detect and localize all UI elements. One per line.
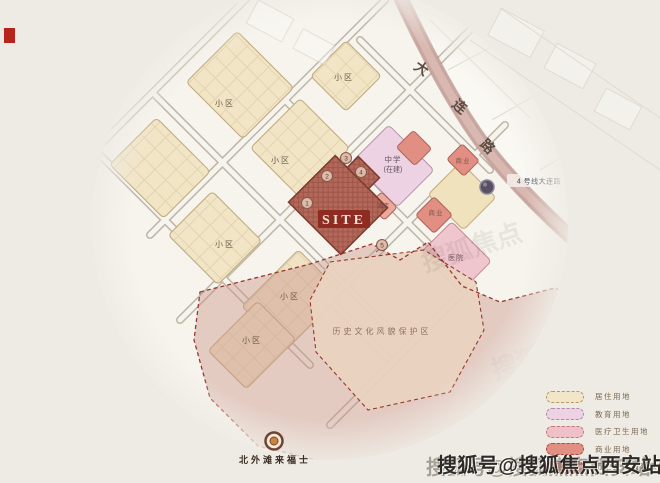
legend-swatch-residential: [546, 391, 584, 403]
landmark-label: 北外滩来福士: [239, 454, 311, 465]
site-plan-page: SITE 1 2 3 4 5 搜狐焦点 搜狐焦点 小区 小区 小区 小区 小区 …: [0, 0, 660, 483]
legend-item-residential: 居住用地: [546, 390, 660, 403]
corner-red-mark: [4, 28, 15, 43]
watermark: 搜狐号@搜狐焦点西安站 搜狐号@搜狐焦点西安站: [437, 449, 660, 478]
legend-swatch-education: [546, 408, 584, 420]
legend-label: 居住用地: [595, 391, 631, 402]
watermark-text: 搜狐号@搜狐焦点西安站: [437, 455, 660, 477]
legend-item-education: 教育用地: [546, 408, 660, 421]
legend-label: 教育用地: [595, 409, 631, 420]
legend-swatch-medical: [546, 426, 584, 438]
legend-item-medical: 医疗卫生用地: [546, 425, 660, 438]
legend-label: 医疗卫生用地: [595, 426, 649, 437]
